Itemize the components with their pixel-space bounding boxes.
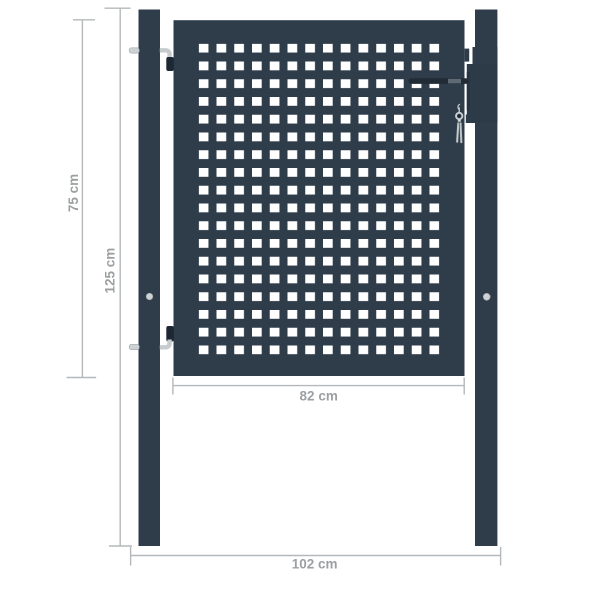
svg-text:102 cm: 102 cm <box>292 557 338 572</box>
svg-text:75 cm: 75 cm <box>66 174 81 212</box>
svg-text:125 cm: 125 cm <box>103 248 118 294</box>
svg-text:82 cm: 82 cm <box>300 389 338 404</box>
